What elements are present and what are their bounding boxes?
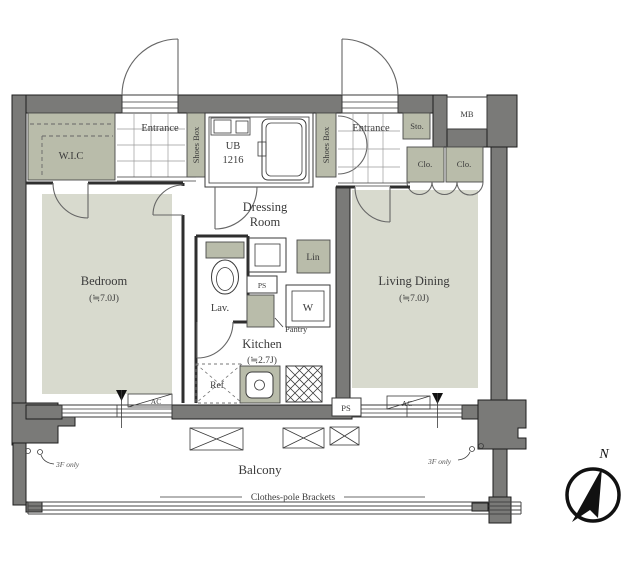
ub-size-label: 1216 [223,155,244,166]
kitchen-size-label: (≒2.7J) [247,355,277,366]
lin-label: Lin [306,253,319,263]
shoes-box-left-label: Shoes Box [191,126,201,163]
living-dining-floor [352,190,478,388]
kitchen-label: Kitchen [242,337,282,351]
shoes-box-right-label: Shoes Box [321,126,331,163]
mb-label: MB [460,109,474,119]
kitchen-sink [246,372,273,398]
note-right-label: 3F only [427,457,452,466]
lavatory: Lav. [206,242,244,314]
compass: N [567,447,619,522]
ac-bedroom-label: AC [151,397,161,406]
stove [286,366,322,402]
entrance-right-label: Entrance [352,123,390,134]
sto-label: Sto. [410,121,423,131]
ac-living-label: AC [402,399,412,408]
wic-label: W.I.C [59,151,84,162]
wic-area: W.I.C [28,113,115,180]
floor-note-left: 3F only [26,449,80,470]
refrigerator-space: Ref [196,364,242,403]
bedroom-label: Bedroom [81,274,128,288]
dressing-label-1: Dressing [243,200,288,214]
living-dining-size-label: (≒7.0J) [399,293,429,304]
lav-label: Lav. [211,303,229,314]
toilet-bowl [212,260,239,294]
dressing-room: Dressing Room Lin PS W Pantry [243,200,330,334]
entrance-left-area: Entrance Shoes Box [117,113,205,181]
floor-plan-drawing: MB Entrance Shoes Box W.I.C [0,0,640,569]
pantry-cabinet [247,295,274,327]
vanity [249,238,286,272]
ub-label: UB [226,141,241,152]
bathtub [262,119,306,180]
bedroom-size-label: (≒7.0J) [89,293,119,304]
balcony: 3F only 3F only Balcony Clothes-pole Bra… [26,427,522,514]
washer-label: W [303,302,314,314]
balcony-label: Balcony [238,462,282,477]
ps-dressing-label: PS [258,281,266,290]
ps-wall-label: PS [341,403,351,413]
kitchen: Kitchen (≒2.7J) Ref [196,337,322,403]
clo-right-label: Clo. [457,159,471,169]
pantry-label: Pantry [285,324,308,334]
pipe-space-wall: PS [332,398,361,416]
ref-label: Ref [210,380,225,391]
balcony-railing [28,502,521,514]
floor-plan-page: MB Entrance Shoes Box W.I.C [0,0,640,569]
clo-left-label: Clo. [418,159,432,169]
dressing-label-2: Room [250,215,281,229]
floor-note-right: 3F only [427,444,484,467]
closets: Clo. Clo. [407,147,483,195]
entrance-right-door-swing [342,39,398,95]
balcony-divider [493,449,507,497]
entrance-left-door-swing [122,39,178,95]
toilet-tank [206,242,244,258]
balcony-equipment [190,427,359,450]
compass-north-label: N [598,447,609,462]
living-dining-label: Living Dining [378,274,450,288]
kitchen-living-wall [336,187,350,403]
note-left-label: 3F only [55,460,80,469]
lavatory-door-swing [197,322,233,358]
entrance-left-label: Entrance [141,123,179,134]
